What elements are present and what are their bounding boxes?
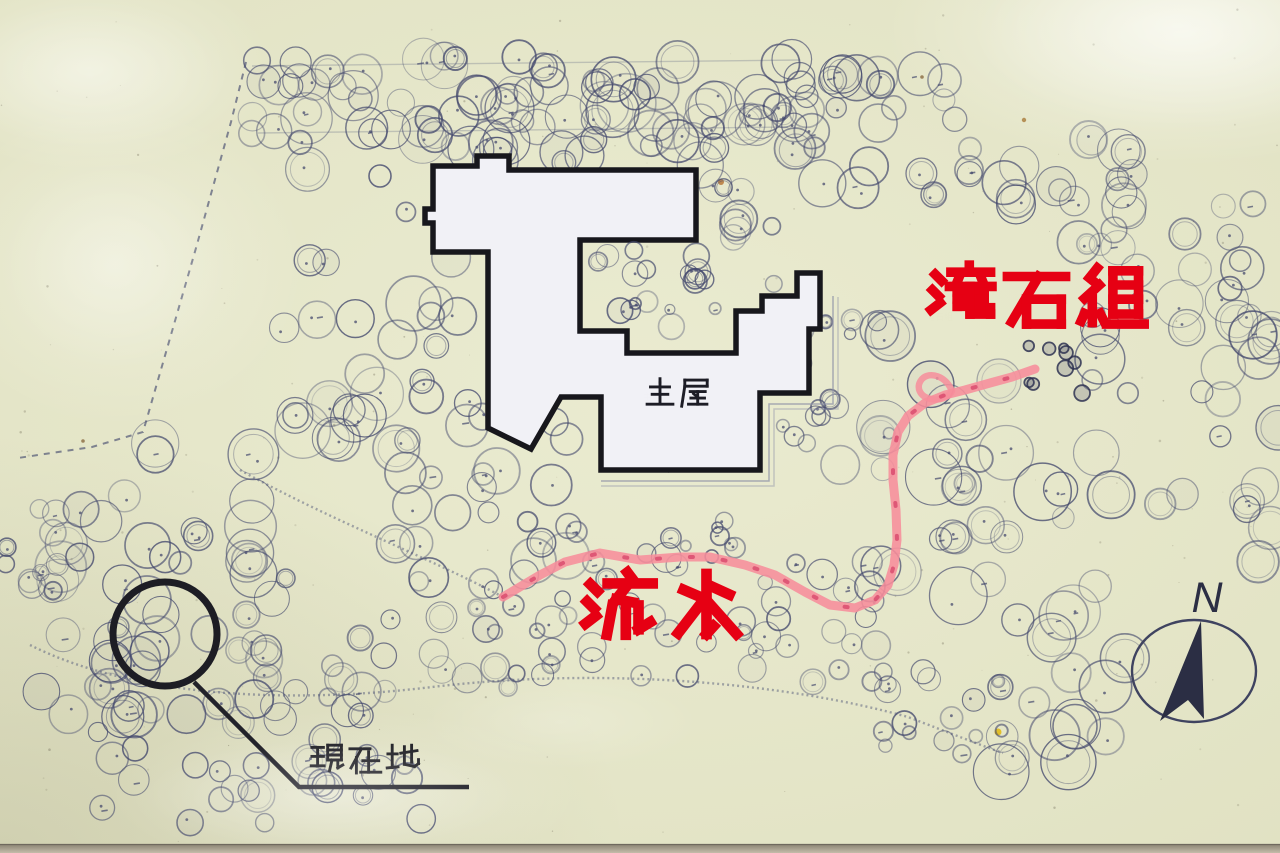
tree-mark-dot (248, 567, 251, 570)
paper-speck (27, 451, 28, 452)
tree-mark-dot (444, 668, 447, 671)
paper-speck (1049, 231, 1050, 232)
paper-speck (1011, 408, 1013, 410)
tree-circle-inner (234, 434, 274, 474)
tree-mark-dot (295, 414, 298, 417)
paper-speck (447, 111, 448, 112)
tree-circle (349, 703, 374, 728)
tree-circle (253, 664, 281, 692)
tree-circle (23, 673, 60, 710)
paper-speck (373, 410, 375, 412)
tree-mark-dot (1020, 202, 1023, 205)
tree-circle (776, 635, 799, 658)
tree-circle (143, 596, 179, 632)
tree-mark-dot (1057, 492, 1060, 495)
paper-speck (1057, 441, 1059, 443)
tree-mark-dot (1103, 692, 1106, 695)
tree-mark-dot (504, 95, 507, 98)
tree-mark-dot (1045, 490, 1048, 493)
paper-speck (1095, 699, 1098, 702)
paper-speck (373, 374, 375, 376)
tree-circle (812, 407, 830, 425)
tree-circle (238, 103, 266, 131)
tree-mark-dot (411, 510, 414, 513)
waterfall-rock (1074, 385, 1090, 401)
tree-circle (1179, 253, 1212, 286)
paper-speck (1035, 479, 1036, 480)
tree-circle (868, 312, 887, 331)
tree-circle (424, 334, 449, 359)
paper-speck (662, 831, 664, 833)
tree-circle (1241, 468, 1278, 505)
paper-speck (1250, 526, 1251, 527)
tree-circle (1240, 191, 1265, 216)
tree-circle (933, 89, 955, 111)
tree-mark-dot (124, 579, 127, 582)
tree-mark-tick (129, 707, 134, 708)
tree-mark-dot (551, 484, 554, 487)
tree-mark-tick (1000, 690, 1006, 691)
tree-circle-inner (430, 605, 454, 629)
tree-circle (763, 218, 780, 235)
tree-circle (934, 731, 954, 751)
paper-speck (487, 549, 489, 551)
paper-speck (43, 777, 45, 779)
kanji-glyph (1007, 277, 1065, 325)
tree-mark-dot (160, 554, 163, 557)
tree-mark-tick (853, 187, 858, 188)
tree-mark-dot (732, 546, 735, 549)
paper-speck (976, 344, 978, 346)
paper-speck (1026, 446, 1027, 447)
tree-circle (826, 98, 846, 118)
paper-speck (1276, 145, 1278, 147)
tree-mark-dot (279, 330, 282, 333)
tree-mark-dot (1008, 773, 1011, 776)
garden-map-sign-photo: 主屋 滝石組 流水 現在地 N (0, 0, 1280, 853)
north-compass: N (1132, 574, 1256, 722)
tree-mark-dot (821, 576, 824, 579)
tree-mark-tick (1061, 494, 1066, 495)
tree-circle (502, 40, 536, 74)
tree-mark-dot (494, 107, 497, 110)
paper-speck (242, 686, 243, 687)
paper-speck (1160, 778, 1161, 779)
tree-mark-dot (1245, 316, 1248, 319)
tree-circle (1169, 218, 1200, 249)
kanji-glyph (931, 265, 992, 314)
paper-speck (1053, 806, 1055, 808)
tree-circle (228, 429, 279, 480)
tree-circle (428, 656, 455, 683)
paper-speck (1219, 206, 1221, 208)
tree-mark-tick (101, 810, 107, 811)
paper-speck (1237, 804, 1239, 806)
paper-speck (137, 154, 139, 156)
paper-speck (1058, 154, 1059, 155)
tree-circle (342, 672, 381, 711)
kanji-stroke (587, 602, 594, 609)
paper-speck (144, 726, 145, 727)
tree-mark-dot (710, 129, 713, 132)
tree-circle (1237, 541, 1279, 583)
paper-speck (953, 628, 955, 630)
tree-mark-dot (888, 687, 891, 690)
tree-mark-dot (322, 263, 325, 266)
tree-mark-dot (248, 617, 251, 620)
tree-circle (473, 616, 499, 642)
tree-circle (46, 618, 80, 652)
tree-mark-dot (1077, 204, 1080, 207)
tree-circle (191, 616, 227, 652)
paper-speck (121, 531, 123, 533)
tree-mark-dot (825, 321, 828, 324)
paper-speck (48, 748, 51, 751)
tree-circle (313, 249, 339, 275)
colored-speck (81, 439, 85, 443)
paper-speck (185, 454, 187, 456)
tree-circle (409, 380, 443, 414)
tree-circle (991, 521, 1023, 553)
kanji-stroke (607, 606, 613, 635)
tree-circle (1211, 194, 1235, 218)
paper-speck (1179, 582, 1180, 583)
tree-circle (66, 543, 94, 571)
tree-circle (530, 67, 568, 105)
tree-circle (299, 301, 336, 338)
tree-mark-dot (262, 657, 265, 660)
kanji-stroke (932, 290, 938, 296)
paper-speck (27, 454, 30, 457)
tree-mark-dot (422, 383, 425, 386)
tree-mark-dot (42, 570, 45, 573)
tree-circle (875, 663, 892, 680)
tree-circle (222, 707, 254, 739)
tree-mark-tick (861, 565, 866, 566)
tree-mark-dot (860, 192, 863, 195)
tree-mark-tick (849, 320, 854, 321)
tree-mark-dot (429, 579, 432, 582)
tree-circle (277, 569, 295, 587)
tree-mark-tick (509, 609, 515, 610)
tree-mark-tick (1252, 334, 1257, 335)
tree-mark-dot (70, 708, 73, 711)
tree-mark-tick (134, 783, 140, 784)
tree-circle (807, 559, 837, 589)
tree-mark-dot (482, 413, 485, 416)
tree-mark-dot (1146, 300, 1149, 303)
tree-circle (235, 680, 273, 718)
tree-mark-dot (311, 81, 314, 84)
tree-mark-dot (793, 433, 796, 436)
tree-mark-tick (846, 591, 851, 592)
tree-circle (637, 68, 679, 110)
tree-circle (90, 795, 115, 820)
tree-mark-tick (1217, 436, 1222, 437)
tree-mark-dot (717, 95, 720, 98)
tree-circle-inner (398, 431, 418, 451)
tree-mark-dot (112, 688, 115, 691)
tree-mark-tick (1127, 149, 1132, 150)
tree-circle (446, 405, 488, 447)
paper-speck (463, 100, 465, 102)
paper-speck (82, 628, 84, 630)
tree-circle (875, 677, 901, 703)
tree-circle (928, 64, 961, 97)
tree-circle-inner (1220, 305, 1253, 338)
tree-circle-inner (381, 529, 411, 559)
kanji-glyph (678, 574, 736, 634)
tree-mark-dot (338, 441, 341, 444)
tree-mark-dot (629, 306, 632, 309)
tree-mark-tick (1271, 331, 1277, 332)
tree-mark-dot (792, 142, 795, 145)
tree-circle (930, 567, 988, 625)
tree-circle-inner (413, 372, 432, 391)
glare-spot (420, 674, 700, 770)
tree-mark-tick (663, 634, 669, 635)
tree-mark-dot (6, 548, 9, 551)
paper-speck (1116, 482, 1118, 484)
tree-mark-dot (310, 316, 313, 319)
tree-circle (1014, 463, 1071, 520)
tree-mark-dot (1095, 356, 1098, 359)
paper-speck (462, 638, 464, 640)
paper-speck (147, 769, 149, 771)
tree-circle (767, 607, 790, 630)
tree-circle (1101, 231, 1135, 265)
tree-mark-tick (304, 114, 308, 115)
tree-mark-dot (1178, 307, 1181, 310)
tree-mark-tick (753, 652, 757, 653)
tree-mark-dot (1066, 754, 1069, 757)
paper-speck (60, 529, 62, 531)
tree-mark-dot (456, 109, 459, 112)
tree-mark-tick (430, 477, 437, 478)
tree-circle (1156, 280, 1204, 328)
tree-mark-dot (126, 713, 129, 716)
tree-mark-tick (1068, 200, 1075, 201)
glare-spot (0, 0, 230, 150)
tree-circle (771, 103, 796, 128)
paper-speck (1155, 681, 1157, 683)
tree-circle (348, 625, 373, 650)
tree-mark-dot (263, 674, 266, 677)
tree-circle (953, 745, 971, 763)
tree-mark-dot (547, 624, 550, 627)
tree-circle (132, 420, 179, 467)
tree-mark-dot (1011, 755, 1014, 758)
paper-speck (419, 680, 421, 682)
tree-mark-dot (950, 714, 953, 717)
tree-mark-dot (499, 470, 502, 473)
tree-circle (829, 660, 848, 679)
tree-mark-dot (535, 628, 538, 631)
tree-mark-dot (354, 321, 357, 324)
tree-mark-dot (563, 119, 566, 122)
tree-circle (1041, 735, 1096, 790)
paper-speck (200, 659, 202, 661)
paper-speck (646, 245, 649, 248)
tree-mark-dot (1119, 661, 1122, 664)
tree-circle (88, 722, 107, 741)
colored-speck (1022, 118, 1026, 122)
paper-speck (1008, 538, 1009, 539)
tree-mark-dot (667, 309, 670, 312)
tree-circle (232, 544, 266, 578)
tree-mark-dot (548, 653, 551, 656)
paper-speck (257, 259, 259, 261)
tree-circle (1002, 604, 1034, 636)
tree-circle (0, 555, 14, 572)
tree-circle (962, 689, 985, 712)
tree-circle (435, 495, 471, 531)
tree-circle (419, 639, 448, 668)
tree-circle (85, 674, 111, 700)
tree-circle-inner (317, 422, 349, 454)
paper-speck (426, 376, 428, 378)
kanji-stroke (639, 622, 651, 629)
tree-mark-tick (794, 565, 799, 566)
tree-mark-dot (518, 59, 521, 62)
tree-mark-dot (116, 755, 119, 758)
tree-mark-tick (130, 713, 137, 714)
tree-mark-tick (885, 691, 890, 692)
tree-mark-dot (1073, 668, 1076, 671)
tree-mark-dot (115, 664, 118, 667)
paper-speck (912, 471, 913, 472)
tree-circle (709, 303, 721, 315)
tree-circle (933, 439, 962, 468)
tree-mark-dot (948, 452, 951, 455)
tree-circle (862, 672, 881, 691)
tree-mark-tick (154, 454, 159, 455)
tree-mark-tick (549, 74, 554, 75)
site-map-svg: 主屋 滝石組 流水 現在地 N (0, 0, 1280, 853)
paper-speck (1246, 506, 1248, 508)
paper-speck (559, 20, 561, 22)
tree-circle (96, 742, 128, 774)
tree-mark-dot (191, 533, 194, 536)
waterfall-rock (1024, 341, 1035, 352)
tree-circle-inner (226, 710, 251, 735)
tree-circle (371, 643, 396, 668)
paper-speck (1163, 400, 1165, 402)
tree-mark-tick (509, 112, 514, 113)
paper-speck (942, 642, 944, 644)
paper-speck (278, 116, 280, 118)
tree-mark-tick (676, 567, 681, 568)
tree-circle (560, 607, 577, 624)
paper-speck (793, 208, 795, 210)
tree-circle (725, 538, 738, 551)
tree-circle (478, 502, 499, 523)
paper-speck (403, 336, 405, 338)
tree-mark-dot (1220, 299, 1223, 302)
paper-speck (870, 665, 872, 667)
tree-mark-dot (453, 55, 456, 58)
tree-circle-inner (427, 336, 446, 355)
tree-mark-dot (1097, 245, 1100, 248)
tree-mark-tick (482, 475, 487, 476)
tree-circle (125, 523, 170, 568)
tree-circle (387, 89, 414, 116)
paper-speck (923, 105, 925, 107)
tree-mark-dot (1004, 534, 1007, 537)
tree-mark-tick (952, 538, 958, 539)
tree-mark-dot (256, 460, 259, 463)
tree-circle-inner (236, 604, 257, 625)
tree-mark-tick (1248, 206, 1254, 207)
tree-circle (555, 591, 570, 606)
tree-circle (1256, 406, 1280, 450)
tree-mark-dot (405, 208, 408, 211)
tree-circle (859, 104, 897, 142)
tree-circle (766, 276, 783, 293)
tree-mark-tick (1001, 452, 1007, 453)
tree-mark-tick (959, 491, 965, 492)
kanji-stroke (590, 584, 597, 591)
tree-circle (257, 114, 292, 149)
tree-circle-inner (1242, 546, 1274, 578)
courtyard-trees-layer (589, 242, 721, 340)
tree-mark-dot (329, 67, 332, 70)
tree-circle (123, 736, 148, 761)
tree-circle (286, 147, 330, 191)
tree-mark-dot (513, 605, 516, 608)
tree-mark-dot (1130, 175, 1133, 178)
tree-mark-tick (912, 77, 917, 78)
tree-circle (1112, 195, 1145, 228)
paper-speck (1119, 476, 1121, 478)
tree-circle (469, 569, 499, 599)
paper-speck (19, 431, 22, 434)
tree-mark-dot (100, 805, 103, 808)
tree-mark-dot (539, 542, 542, 545)
tree-circle (800, 669, 825, 694)
paper-speck (1172, 545, 1173, 546)
waterfall-rock (1059, 343, 1069, 353)
tree-mark-dot (775, 601, 778, 604)
tree-circle (898, 52, 942, 96)
tree-circle (539, 638, 566, 665)
tree-mark-dot (451, 314, 454, 317)
paper-speck (224, 302, 226, 304)
tree-mark-tick (53, 516, 57, 517)
kanji-stroke (586, 616, 596, 624)
tree-mark-dot (969, 697, 972, 700)
tree-mark-dot (883, 339, 886, 342)
tree-mark-dot (837, 666, 840, 669)
tree-circle (1074, 430, 1120, 476)
tree-circle (659, 314, 685, 340)
tree-mark-dot (957, 487, 960, 490)
paper-speck (973, 212, 974, 213)
paper-speck (938, 50, 939, 51)
tree-circle-inner (596, 62, 631, 97)
kanji-stroke (712, 587, 729, 595)
tree-circle (167, 695, 205, 733)
tree-mark-dot (357, 420, 360, 423)
tree-circle (377, 525, 415, 563)
tree-mark-dot (742, 214, 745, 217)
tree-mark-dot (1010, 447, 1013, 450)
tree-circle (838, 167, 879, 208)
tree-circle-inner (950, 404, 982, 436)
tree-circle (941, 707, 963, 729)
kanji-stroke (684, 590, 701, 597)
tree-circle (1052, 653, 1091, 692)
